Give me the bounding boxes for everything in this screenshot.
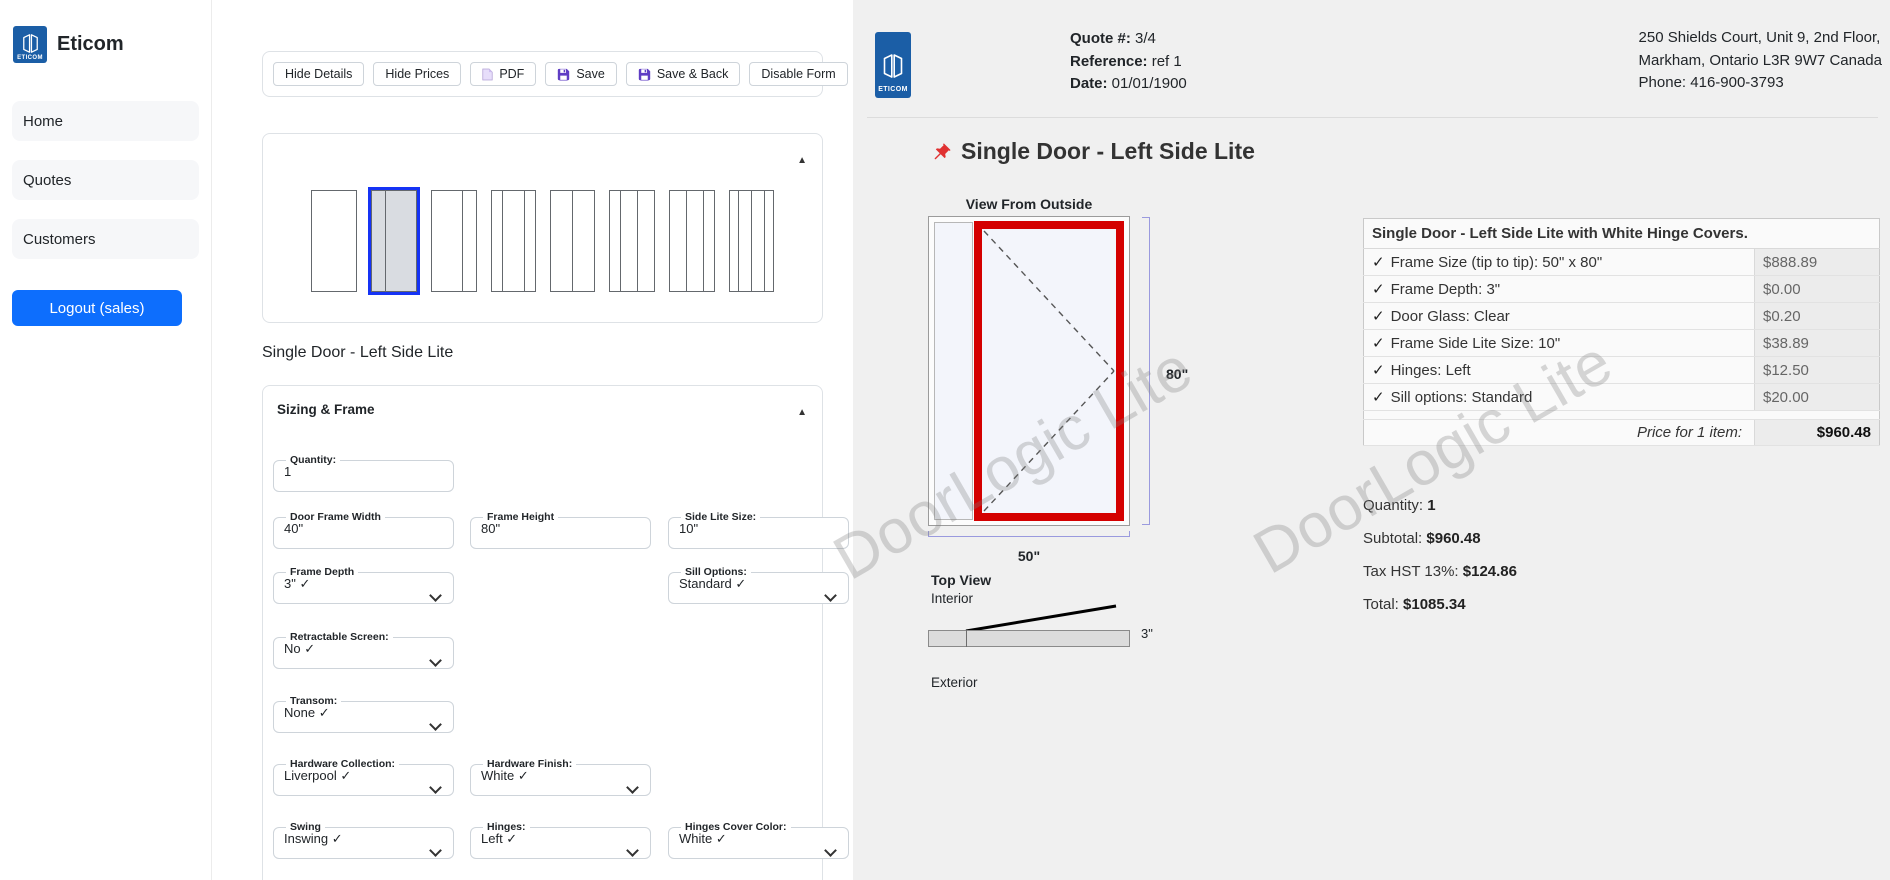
sill-options-select[interactable]: Sill Options:Standard ✓ xyxy=(668,566,849,604)
view-from-outside-label: View From Outside xyxy=(928,196,1130,212)
price-row-price: $888.89 xyxy=(1755,249,1880,276)
quote-item-title-text: Single Door - Left Side Lite xyxy=(961,138,1255,165)
price-row-item: ✓Frame Size (tip to tip): 50" x 80" xyxy=(1364,249,1755,276)
price-row: ✓Sill options: Standard$20.00 xyxy=(1364,384,1880,411)
address-line: Markham, Ontario L3R 9W7 Canada xyxy=(1639,50,1882,73)
total-line-total: Total: $1085.34 xyxy=(1363,596,1517,614)
check-icon: ✓ xyxy=(1372,362,1385,379)
header-divider xyxy=(867,117,1878,118)
price-row-price: $12.50 xyxy=(1755,357,1880,384)
door-style-panel xyxy=(462,190,477,292)
exterior-label: Exterior xyxy=(931,675,978,690)
top-view-label: Top View xyxy=(931,572,991,588)
door-style-panel xyxy=(738,190,752,292)
door-style-panel xyxy=(572,190,595,292)
door-logo-icon xyxy=(21,33,40,54)
section-title: Sizing & Frame xyxy=(277,402,375,417)
total-line-tax-hst-13: Tax HST 13%: $124.86 xyxy=(1363,563,1517,581)
price-row: ✓Frame Size (tip to tip): 50" x 80"$888.… xyxy=(1364,249,1880,276)
field-value: Liverpool ✓ xyxy=(284,768,443,784)
eticom-logo: ETICOM xyxy=(13,26,47,63)
spacer-row xyxy=(1364,411,1880,420)
sidebar-item-home[interactable]: Home xyxy=(12,101,199,141)
check-icon: ✓ xyxy=(1372,254,1385,271)
check-icon: ✓ xyxy=(1372,335,1385,352)
price-total-row: Price for 1 item: $960.48 xyxy=(1364,420,1880,446)
company-address: 250 Shields Court, Unit 9, 2nd Floor,Mar… xyxy=(1639,27,1882,95)
button-label: Hide Prices xyxy=(385,67,449,81)
button-label: Disable Form xyxy=(761,67,835,81)
top-view-frame-divider xyxy=(966,630,967,647)
door-style-option-double-door-both-side-lites[interactable] xyxy=(729,190,774,292)
quote-item-title: Single Door - Left Side Lite xyxy=(931,138,1255,165)
frame-height-input[interactable]: Frame Height80" xyxy=(470,511,651,549)
app: ETICOM Eticom HomeQuotesCustomers Logout… xyxy=(0,0,1890,880)
field-value: 80" xyxy=(481,521,640,536)
door-style-panel xyxy=(311,190,357,292)
floppy-icon xyxy=(638,68,651,81)
sizing-frame-section: Sizing & Frame ▲ Quantity:1Door Frame Wi… xyxy=(262,385,823,880)
side-lite-size-input[interactable]: Side Lite Size:10" xyxy=(668,511,849,549)
toolbar: Hide DetailsHide PricesPDFSaveSave & Bac… xyxy=(262,51,823,97)
hinges-select[interactable]: Hinges:Left ✓ xyxy=(470,821,651,859)
door-style-panel xyxy=(669,190,687,292)
address-line: 250 Shields Court, Unit 9, 2nd Floor, xyxy=(1639,27,1882,50)
depth-label: 3" xyxy=(1141,626,1153,641)
field-value: 40" xyxy=(284,521,443,536)
door-style-option-single-door-right-side-lite[interactable] xyxy=(431,190,477,292)
field-value: 3" ✓ xyxy=(284,576,443,592)
field-value: Left ✓ xyxy=(481,831,640,847)
button-label: Save & Back xyxy=(657,67,729,81)
transom-select[interactable]: Transom:None ✓ xyxy=(273,695,454,733)
price-row-price: $0.20 xyxy=(1755,303,1880,330)
door-style-panel xyxy=(764,190,774,292)
door-style-options xyxy=(263,190,822,292)
door-frame-width-input[interactable]: Door Frame Width40" xyxy=(273,511,454,549)
quote-info-line: Quote #: 3/4 xyxy=(1070,28,1187,51)
field-label: Quantity: xyxy=(286,454,340,466)
side-lite-panel xyxy=(934,222,973,520)
door-style-option-double-door[interactable] xyxy=(550,190,595,292)
collapse-up-icon[interactable]: ▲ xyxy=(797,408,807,418)
logout-button[interactable]: Logout (sales) xyxy=(12,290,182,326)
disable-form-button[interactable]: Disable Form xyxy=(749,62,847,86)
door-style-option-double-door-right-side-lite[interactable] xyxy=(669,190,715,292)
price-row: ✓Door Glass: Clear$0.20 xyxy=(1364,303,1880,330)
floppy-icon xyxy=(557,68,570,81)
quote-info: Quote #: 3/4Reference: ref 1Date: 01/01/… xyxy=(1070,28,1187,96)
door-style-panel xyxy=(703,190,715,292)
door-logo-icon xyxy=(881,50,905,82)
top-view-frame-bar xyxy=(928,630,1130,647)
quantity-input[interactable]: Quantity:1 xyxy=(273,454,454,492)
sidebar-nav: HomeQuotesCustomers xyxy=(12,101,199,259)
check-icon: ✓ xyxy=(1372,389,1385,406)
price-row-price: $38.89 xyxy=(1755,330,1880,357)
price-row-item: ✓Frame Side Lite Size: 10" xyxy=(1364,330,1755,357)
total-line-quantity: Quantity: 1 xyxy=(1363,497,1517,515)
field-value: Standard ✓ xyxy=(679,576,838,592)
quote-totals: Quantity: 1Subtotal: $960.48Tax HST 13%:… xyxy=(1363,497,1517,629)
quote-preview-panel: ETICOM Quote #: 3/4Reference: ref 1Date:… xyxy=(853,0,1890,880)
check-icon: ✓ xyxy=(1372,281,1385,298)
price-row-item: ✓Frame Depth: 3" xyxy=(1364,276,1755,303)
price-row-item: ✓Sill options: Standard xyxy=(1364,384,1755,411)
width-dimension-label: 50" xyxy=(928,548,1130,564)
field-value: None ✓ xyxy=(284,705,443,721)
logo-text: ETICOM xyxy=(878,82,908,98)
retractable-screen-select[interactable]: Retractable Screen:No ✓ xyxy=(273,631,454,669)
collapse-up-icon[interactable]: ▲ xyxy=(797,156,807,166)
selected-model-label: Single Door - Left Side Lite xyxy=(262,344,453,362)
door-style-panel xyxy=(524,190,536,292)
brand-name: Eticom xyxy=(57,33,124,56)
pushpin-icon xyxy=(931,141,952,162)
door-style-panel xyxy=(637,190,655,292)
field-value: 1 xyxy=(284,464,443,479)
pdf-icon xyxy=(482,68,493,81)
price-table-header: Single Door - Left Side Lite with White … xyxy=(1364,219,1880,249)
door-style-panel xyxy=(751,190,765,292)
sidebar-item-quotes[interactable]: Quotes xyxy=(12,160,199,200)
field-value: White ✓ xyxy=(481,768,640,784)
quote-info-line: Date: 01/01/1900 xyxy=(1070,73,1187,96)
price-row-item: ✓Door Glass: Clear xyxy=(1364,303,1755,330)
price-breakdown-table: Single Door - Left Side Lite with White … xyxy=(1363,218,1880,446)
hardware-finish-select[interactable]: Hardware Finish:White ✓ xyxy=(470,758,651,796)
hide-details-button[interactable]: Hide Details xyxy=(273,62,364,86)
field-value: White ✓ xyxy=(679,831,838,847)
hardware-collection-select[interactable]: Hardware Collection:Liverpool ✓ xyxy=(273,758,454,796)
price-row-price: $20.00 xyxy=(1755,384,1880,411)
save-back-button[interactable]: Save & Back xyxy=(626,62,741,86)
door-style-option-single-door-both-side-lites[interactable] xyxy=(491,190,536,292)
button-label: Save xyxy=(576,67,605,81)
door-style-panel xyxy=(686,190,704,292)
field-value: Inswing ✓ xyxy=(284,831,443,847)
field-value: 10" xyxy=(679,521,838,536)
price-row-price: $0.00 xyxy=(1755,276,1880,303)
door-style-option-single-door[interactable] xyxy=(311,190,357,292)
price-total-label: Price for 1 item: xyxy=(1364,420,1755,446)
door-style-selector: ▲ xyxy=(262,133,823,323)
hide-prices-button[interactable]: Hide Prices xyxy=(373,62,461,86)
address-line: Phone: 416-900-3793 xyxy=(1639,72,1882,95)
door-style-panel xyxy=(371,190,386,292)
door-style-panel xyxy=(431,190,463,292)
price-row: ✓Frame Depth: 3"$0.00 xyxy=(1364,276,1880,303)
price-row-item: ✓Hinges: Left xyxy=(1364,357,1755,384)
eticom-logo-large: ETICOM xyxy=(875,32,911,98)
height-dimension-label: 80" xyxy=(1166,366,1188,382)
field-value: No ✓ xyxy=(284,641,443,657)
top-view-swing-line xyxy=(928,600,1130,632)
frame-depth-select[interactable]: Frame Depth3" ✓ xyxy=(273,566,454,604)
door-style-option-double-door-left-side-lite[interactable] xyxy=(609,190,655,292)
door-style-panel xyxy=(502,190,525,292)
width-dimension-line xyxy=(928,531,1130,537)
quote-info-line: Reference: ref 1 xyxy=(1070,51,1187,74)
price-total-value: $960.48 xyxy=(1755,420,1880,446)
door-style-option-single-door-left-side-lite[interactable] xyxy=(371,190,417,292)
door-preview-diagram xyxy=(928,216,1130,526)
door-style-panel xyxy=(620,190,638,292)
price-row: ✓Frame Side Lite Size: 10"$38.89 xyxy=(1364,330,1880,357)
price-row: ✓Hinges: Left$12.50 xyxy=(1364,357,1880,384)
brand: ETICOM Eticom xyxy=(13,26,124,63)
pdf-button[interactable]: PDF xyxy=(470,62,536,86)
door-panel xyxy=(974,221,1124,521)
door-style-panel xyxy=(550,190,573,292)
height-dimension-line xyxy=(1142,217,1150,525)
sidebar-item-customers[interactable]: Customers xyxy=(12,219,199,259)
sidebar: ETICOM Eticom HomeQuotesCustomers Logout… xyxy=(0,0,212,880)
save-button[interactable]: Save xyxy=(545,62,617,86)
button-label: Hide Details xyxy=(285,67,352,81)
total-line-subtotal: Subtotal: $960.48 xyxy=(1363,530,1517,548)
hinges-cover-color-select[interactable]: Hinges Cover Color:White ✓ xyxy=(668,821,849,859)
check-icon: ✓ xyxy=(1372,308,1385,325)
door-style-panel xyxy=(385,190,417,292)
door-swing-lines xyxy=(982,229,1116,513)
swing-select[interactable]: SwingInswing ✓ xyxy=(273,821,454,859)
logo-text: ETICOM xyxy=(17,54,43,63)
button-label: PDF xyxy=(499,67,524,81)
top-view-diagram xyxy=(928,600,1130,647)
